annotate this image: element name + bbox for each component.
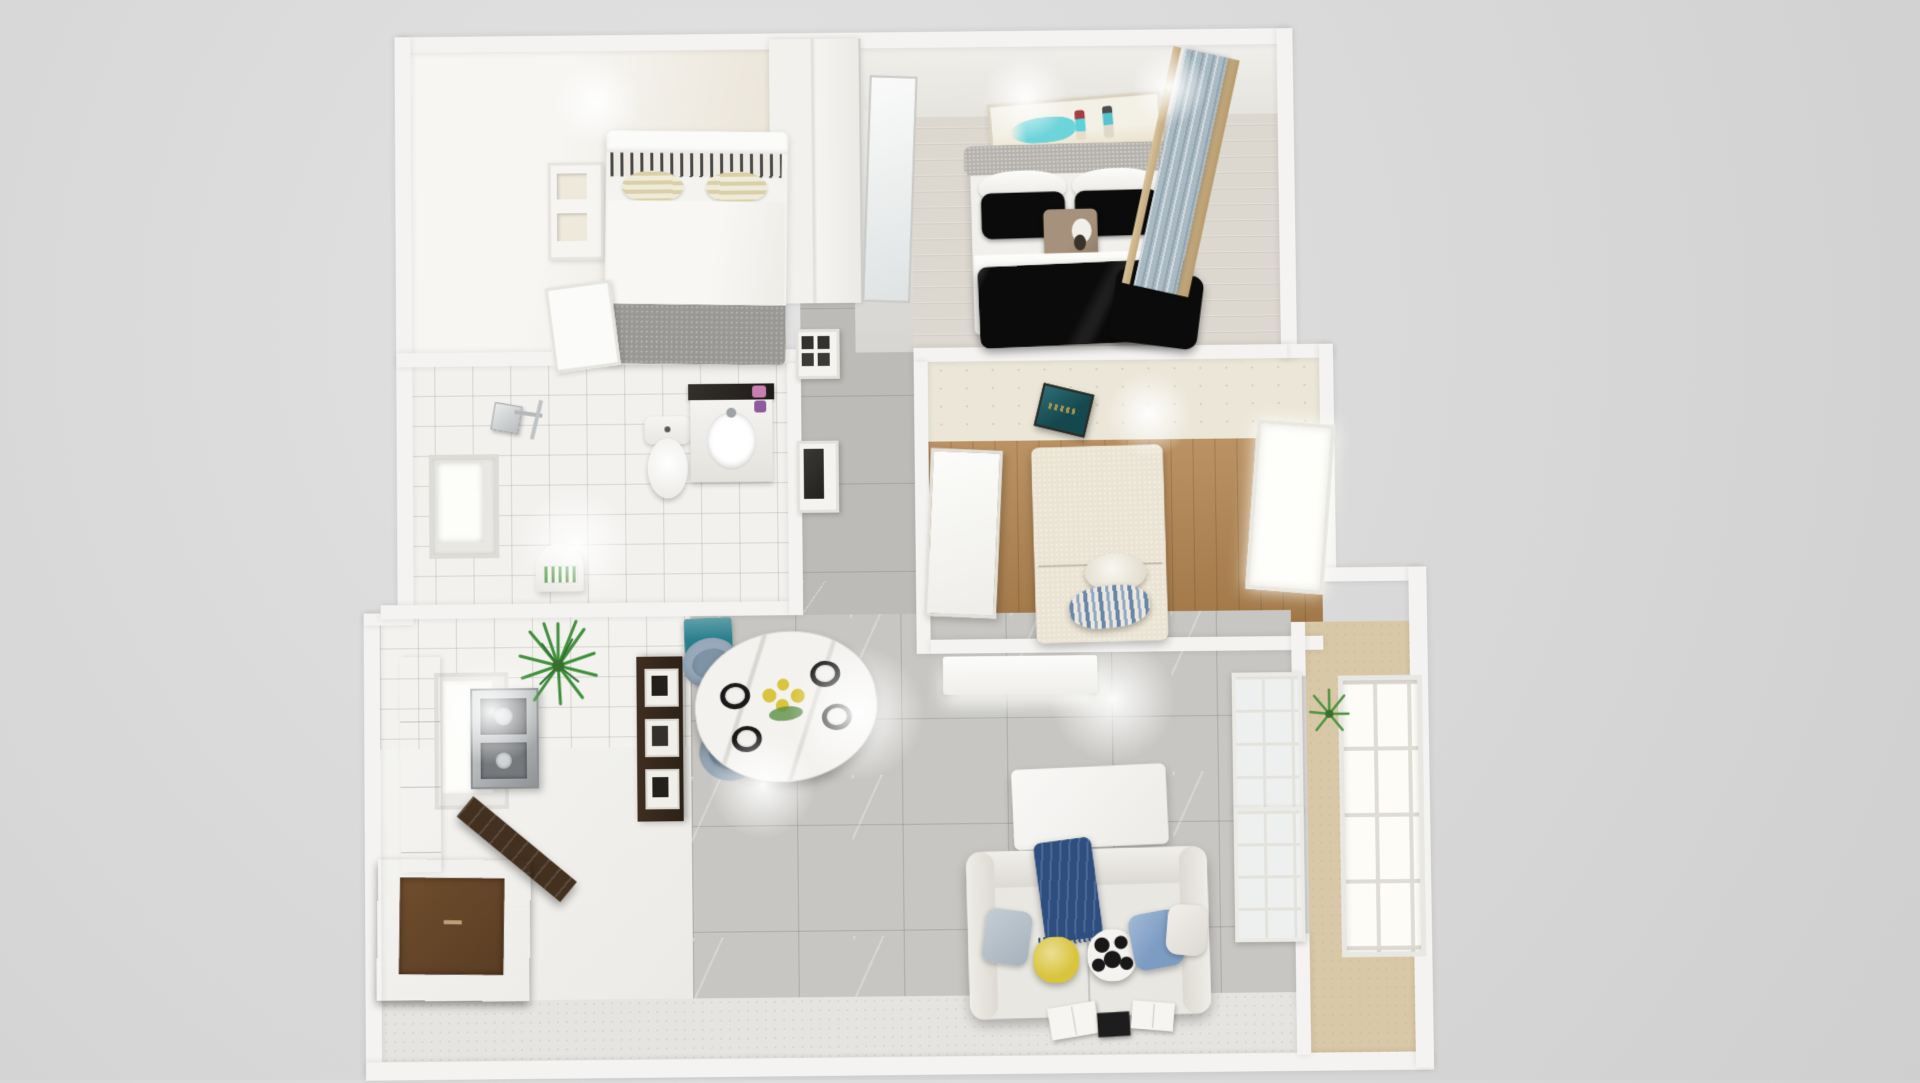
french-door xyxy=(1233,807,1305,943)
shelf-cubby xyxy=(557,173,587,199)
french-door xyxy=(1232,672,1304,811)
bath-shelf-decor xyxy=(752,385,770,415)
bed-white-pillow xyxy=(622,170,684,202)
vanity-sink xyxy=(706,411,756,469)
study-door xyxy=(924,448,1003,619)
media-console xyxy=(943,655,1098,695)
coffee-table xyxy=(1011,763,1169,850)
study-window xyxy=(1245,419,1335,594)
plate xyxy=(736,729,758,749)
display-shelf xyxy=(636,656,683,821)
kitchen-cabinets xyxy=(400,657,441,872)
shelf-frame xyxy=(644,668,678,706)
kitchen-plant xyxy=(518,619,599,708)
magazine-spine xyxy=(1152,1003,1155,1028)
frame-print xyxy=(651,676,667,696)
toilet-button xyxy=(664,426,670,432)
balcony-window-wall xyxy=(1338,675,1427,958)
bathroom-window xyxy=(429,454,500,559)
flower xyxy=(776,678,789,692)
arch-decor xyxy=(535,543,583,592)
artwork-teal-dress xyxy=(1009,115,1077,146)
bathroom-window-pane xyxy=(437,462,483,542)
white-pillow xyxy=(1165,903,1209,956)
gray-pillow xyxy=(981,907,1034,967)
living-balcony-wall-bottom xyxy=(1295,933,1311,1054)
floorplan-render xyxy=(343,9,1447,1083)
appliance-glass xyxy=(817,336,829,349)
living-balcony-wall-top xyxy=(1291,622,1306,676)
placemat xyxy=(809,659,842,689)
left-wall-upper xyxy=(394,37,413,621)
plate xyxy=(724,686,746,706)
graphic-pillow-motif-dark xyxy=(1074,234,1086,250)
burner-ring xyxy=(494,707,512,725)
shelf-frame xyxy=(645,769,679,810)
decor-purple xyxy=(754,400,766,412)
frame-print xyxy=(652,726,668,746)
dark-tablet xyxy=(1097,1011,1131,1037)
appliance-glass-tall xyxy=(804,449,824,499)
plate xyxy=(826,707,848,727)
daybed xyxy=(1031,444,1169,644)
dark-cabinet-handle xyxy=(444,920,462,924)
open-magazine xyxy=(1047,1001,1100,1041)
plaque-gold-text xyxy=(1048,403,1079,416)
bedroom-left-door xyxy=(545,280,621,374)
wall-shelf xyxy=(548,162,605,260)
plate xyxy=(814,664,836,684)
yellow-pillow xyxy=(1032,936,1080,984)
daybed-striped-pillow xyxy=(1067,581,1151,632)
shower-fixture xyxy=(490,390,546,446)
floor-magazines xyxy=(1049,993,1176,1051)
placemat xyxy=(719,681,752,711)
appliance-column-lower xyxy=(797,441,840,513)
artwork-figure-bride xyxy=(1074,110,1086,140)
right-wall-master xyxy=(1276,28,1297,358)
shower-head-plate xyxy=(490,402,522,434)
flower xyxy=(762,688,778,704)
flower-centerpiece xyxy=(754,673,816,732)
placemat xyxy=(730,724,763,754)
floor-mirror xyxy=(862,75,917,303)
shelf-frame xyxy=(645,719,679,758)
toilet-bowl xyxy=(648,438,688,498)
shower-riser xyxy=(530,400,543,440)
open-magazine xyxy=(1131,1000,1175,1031)
bed-white-headboard xyxy=(606,131,788,155)
vanity-faucet xyxy=(726,408,736,418)
bed-white-gray-throw xyxy=(604,303,786,365)
sink-basin xyxy=(481,742,527,779)
appliance-glass xyxy=(818,353,830,366)
bed-white-duvet xyxy=(606,200,785,305)
shelf-cubby xyxy=(557,213,587,241)
flower xyxy=(790,688,806,704)
appliance-column-upper xyxy=(795,329,839,379)
appliance-glass xyxy=(802,353,814,366)
magazine-spine xyxy=(1071,1007,1077,1035)
left-wall-lower xyxy=(364,613,383,1076)
bed-white-pillow xyxy=(705,171,767,203)
placemat xyxy=(820,702,853,732)
bed-white xyxy=(604,131,788,366)
appliance-glass xyxy=(802,336,814,349)
decor-pink xyxy=(752,385,766,397)
sink-drain xyxy=(496,753,512,769)
arch-decor-greenery xyxy=(544,565,578,583)
toilet xyxy=(644,416,691,502)
artwork-figure-groom xyxy=(1102,106,1115,138)
dark-cabinet-panel xyxy=(399,878,505,976)
balcony-plant xyxy=(1308,686,1351,737)
frame-print xyxy=(652,777,668,797)
kitchen-dark-cabinet xyxy=(376,859,530,1001)
flower-leaves xyxy=(768,704,804,722)
